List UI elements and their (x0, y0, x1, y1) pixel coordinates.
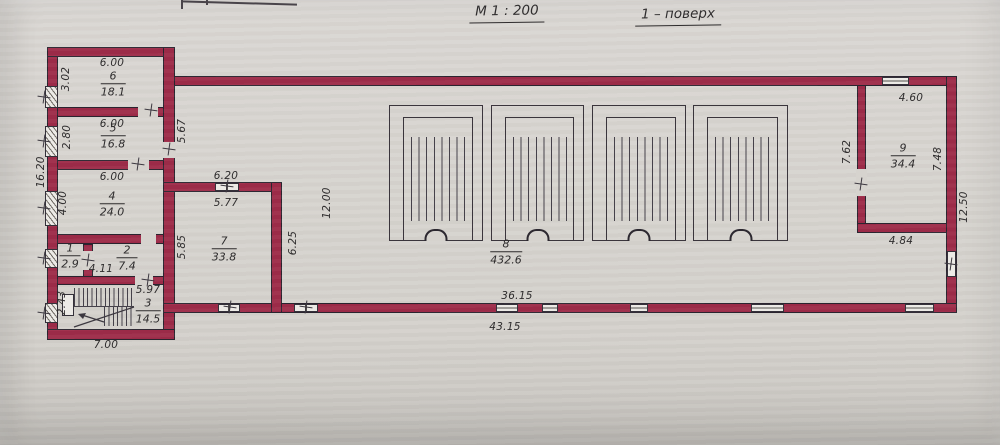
room-7-area: 33.8 (212, 249, 237, 264)
staircase (74, 306, 134, 328)
dim-stair-height: 2.43 (56, 291, 68, 316)
dim-block-width: 7.00 (94, 339, 119, 351)
room-7-label: 7 33.8 (212, 234, 237, 264)
dim-left-total-height: 16.20 (35, 156, 47, 188)
dim-total-width: 43.15 (489, 321, 521, 333)
room-3-label: 3 14.5 (136, 296, 161, 326)
dim-room7-height-outer: 6.25 (287, 231, 299, 256)
room-9-label: 9 34.4 (891, 141, 916, 171)
wall-block-top (47, 47, 175, 57)
room-8-number: 8 (490, 237, 522, 252)
window-hall-bottom-5 (751, 304, 784, 312)
dim-room5-width: 6.00 (100, 118, 125, 130)
window-room9-top (882, 77, 909, 85)
room-4-number: 4 (100, 189, 125, 204)
dim-vestibule-width: 4.11 (89, 263, 114, 275)
room-7-number: 7 (212, 234, 237, 249)
scale-title: М 1 : 200 (469, 2, 545, 23)
vehicle-bay-grill (715, 137, 769, 221)
dim-room5-height: 2.80 (61, 125, 73, 150)
room-2-area: 7.4 (117, 258, 138, 273)
vehicle-bay-3 (592, 105, 686, 241)
vehicle-bay-4 (693, 105, 788, 241)
vehicle-bay-notch (526, 229, 549, 241)
vehicle-bay-1 (389, 105, 483, 241)
dim-room9-height-right: 7.48 (932, 147, 944, 172)
dim-room7-width-outer: 6.20 (214, 170, 239, 182)
vehicle-bay-grill (614, 137, 668, 221)
dim-right-total-height: 12.50 (958, 191, 970, 223)
vehicle-bay-grill (513, 137, 567, 221)
room-6-number: 6 (101, 69, 126, 84)
dim-room7-width-inner: 5.77 (214, 197, 239, 209)
tick-mark (38, 252, 51, 265)
dim-room4-width: 6.00 (100, 171, 125, 183)
room-9-number: 9 (891, 141, 916, 156)
tick-mark (163, 143, 176, 156)
tick-mark (38, 202, 51, 215)
dim-room6-height: 3.02 (60, 67, 72, 92)
window-hall-bottom-4 (630, 304, 648, 312)
window-hall-bottom-3 (542, 304, 558, 312)
floor-title: 1 – поверх (635, 5, 721, 26)
room-6-area: 18.1 (101, 84, 126, 99)
cutoff-tick (181, 0, 183, 9)
room-2-number: 2 (117, 243, 138, 258)
window-hall-bottom-6 (905, 304, 934, 312)
wall-hall-right (946, 76, 957, 313)
room-4-area: 24.0 (100, 204, 125, 219)
room-3-area: 14.5 (136, 311, 161, 326)
vehicle-bay-grill (411, 137, 465, 221)
stair-upper-flight (74, 288, 134, 306)
vehicle-bay-2 (491, 105, 584, 241)
vehicle-bay-notch (425, 229, 448, 241)
tick-mark (38, 135, 51, 148)
dim-hall-height: 12.00 (321, 187, 333, 219)
wall-room7-right (271, 182, 282, 313)
tick-mark (38, 91, 51, 104)
room-8-area: 432.6 (490, 252, 522, 267)
dim-room9-width-bottom: 4.84 (889, 235, 914, 247)
tick-mark (145, 104, 158, 117)
floor-plan-sheet: М 1 : 200 1 – поверх (0, 0, 1000, 445)
dim-room6-width: 6.00 (100, 57, 125, 69)
wall-block-right (163, 47, 175, 340)
room-8-label: 8 432.6 (490, 237, 522, 267)
cutoff-tick-2 (206, 0, 208, 5)
dim-room9-width: 4.60 (899, 92, 924, 104)
wall-hall-top (174, 76, 957, 86)
wall-room9-bottom (857, 223, 947, 233)
window-hall-bottom-2 (496, 304, 518, 312)
dim-corridor-height: 5.67 (176, 119, 188, 144)
tick-mark (38, 307, 51, 320)
vehicle-bay-notch (729, 229, 752, 241)
dim-room7-height: 5.85 (176, 235, 188, 260)
wall-hall-bottom (163, 303, 957, 313)
room-6-label: 6 18.1 (101, 69, 126, 99)
tick-mark (300, 301, 313, 314)
room-1-label: 1 2.9 (60, 241, 81, 271)
wall-room9-left (857, 85, 866, 232)
room-1-area: 2.9 (60, 256, 81, 271)
room-4-label: 4 24.0 (100, 189, 125, 219)
room-5-area: 16.8 (101, 136, 126, 151)
room-9-area: 34.4 (891, 156, 916, 171)
tick-mark (224, 301, 237, 314)
tick-mark (945, 258, 958, 271)
tick-mark (132, 158, 145, 171)
dim-hall-width-inner: 36.15 (501, 290, 533, 302)
room-2-label: 2 7.4 (117, 243, 138, 273)
room-3-number: 3 (136, 296, 161, 311)
tick-mark (855, 178, 868, 191)
dim-room4-height: 4.00 (57, 191, 69, 216)
room-1-number: 1 (60, 241, 81, 256)
door-room4-room2 (141, 233, 156, 245)
cutoff-line (181, 0, 297, 5)
dim-stair-width: 5.97 (136, 284, 161, 296)
dim-room9-height-left: 7.62 (841, 140, 853, 165)
vehicle-bay-notch (628, 229, 651, 241)
